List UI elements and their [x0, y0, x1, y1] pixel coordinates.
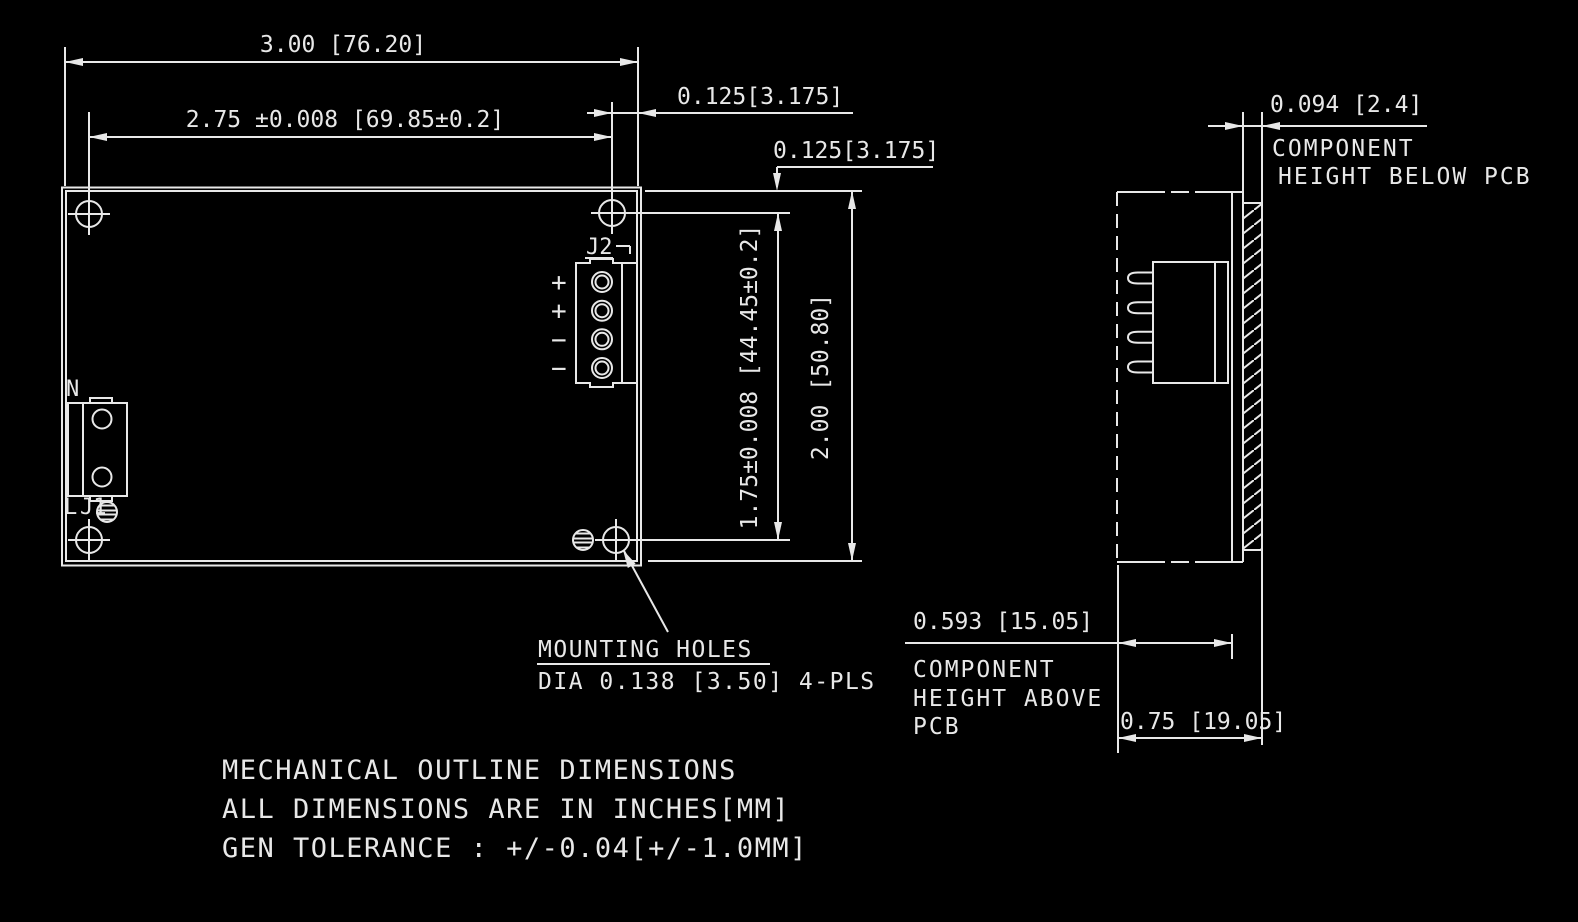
- above-pcb-label-line3: PCB: [913, 714, 961, 740]
- below-pcb-hatch: [1243, 203, 1262, 550]
- j2-pin2-label: +: [551, 297, 567, 327]
- screw-symbol-right: [573, 530, 593, 550]
- mounting-holes-spec: DIA 0.138 [3.50] 4-PLS: [538, 669, 876, 695]
- j2-connector-side: [1128, 262, 1228, 383]
- dim-hole-span-horizontal: 2.75 ±0.008 [69.85±0.2]: [186, 107, 505, 133]
- j2-polarity-mark: [616, 246, 630, 254]
- j1-pin-l-label: L: [64, 495, 77, 520]
- j1-connector: [68, 398, 127, 501]
- dim-overall-width: 3.00 [76.20]: [260, 32, 426, 58]
- dim-component-height-below-pcb: 0.094 [2.4]: [1270, 92, 1422, 118]
- j2-designator: J2: [586, 235, 613, 260]
- dim-overall-height: 2.00 [50.80]: [808, 294, 834, 460]
- mounting-holes-title: MOUNTING HOLES: [538, 637, 753, 663]
- dim-hole-edge-offset-horizontal: 0.125[3.175]: [677, 84, 843, 110]
- j1-designator: J1: [80, 495, 107, 520]
- j2-pin1-label: +: [551, 268, 567, 298]
- dim-hole-span-vertical: 1.75±0.008 [44.45±0.2]: [737, 225, 763, 530]
- note-line2: ALL DIMENSIONS ARE IN INCHES[MM]: [222, 794, 790, 825]
- dim-hole-edge-offset-vertical: 0.125[3.175]: [773, 138, 939, 164]
- above-pcb-label-line2: HEIGHT ABOVE: [913, 686, 1103, 712]
- mechanical-drawing: N L J1 J2 + + − −: [0, 0, 1578, 922]
- note-line3: GEN TOLERANCE : +/-0.04[+/-1.0MM]: [222, 833, 808, 864]
- drawing-canvas: N L J1 J2 + + − −: [0, 0, 1578, 922]
- note-line1: MECHANICAL OUTLINE DIMENSIONS: [222, 755, 737, 786]
- j1-pin-n-label: N: [66, 377, 79, 402]
- j2-pin4-label: −: [551, 354, 567, 384]
- j2-connector: [576, 259, 637, 387]
- top-view-dimensions: 3.00 [76.20] 2.75 ±0.008 [69.85±0.2] 0.1…: [65, 32, 939, 561]
- dim-total-height: 0.75 [19.05]: [1120, 709, 1286, 735]
- mounting-hole-bottom-left: [68, 519, 110, 561]
- above-pcb-label-line1: COMPONENT: [913, 657, 1056, 683]
- j2-pin3-label: −: [551, 325, 567, 355]
- general-notes: MECHANICAL OUTLINE DIMENSIONS ALL DIMENS…: [222, 755, 808, 864]
- dim-component-height-above-pcb: 0.593 [15.05]: [913, 609, 1093, 635]
- mounting-hole-top-right: [591, 102, 633, 234]
- side-view: [1117, 112, 1262, 745]
- below-pcb-label-line1: COMPONENT: [1272, 136, 1415, 162]
- below-pcb-label-line2: HEIGHT BELOW PCB: [1278, 164, 1532, 190]
